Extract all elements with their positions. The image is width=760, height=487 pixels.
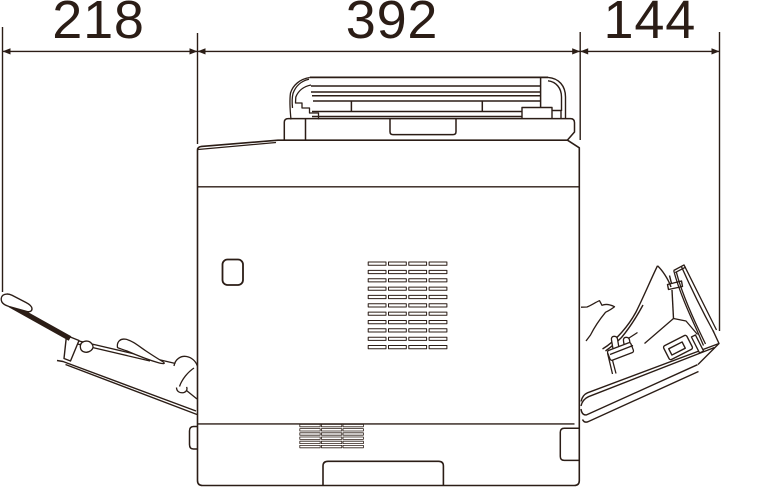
svg-text:218: 218 — [52, 0, 145, 50]
svg-text:392: 392 — [346, 0, 439, 50]
svg-text:144: 144 — [604, 0, 697, 50]
